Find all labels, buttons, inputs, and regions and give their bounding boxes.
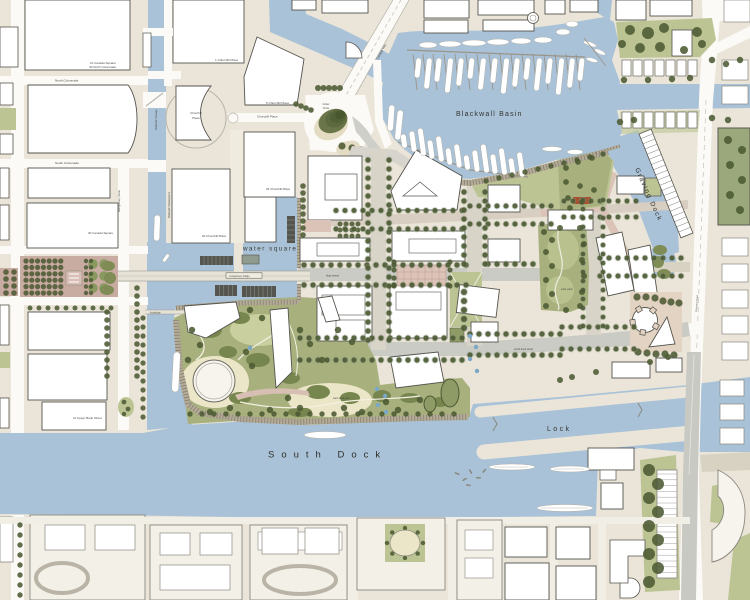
svg-text:south dock street: south dock street	[514, 348, 533, 351]
svg-text:Montgomery Street: Montgomery Street	[117, 190, 121, 212]
svg-text:west dock park: west dock park	[333, 397, 350, 400]
svg-text:South Dock: South Dock	[268, 450, 387, 461]
svg-text:30 North Colonnade: 30 North Colonnade	[89, 65, 116, 69]
svg-text:montgomery bridge: montgomery bridge	[229, 275, 250, 278]
svg-text:Bellmouth Passage: Bellmouth Passage	[155, 109, 158, 130]
svg-text:water square: water square	[242, 246, 297, 253]
svg-text:25 Churchill Place: 25 Churchill Place	[266, 187, 291, 191]
svg-text:5 Churchill Place: 5 Churchill Place	[266, 101, 289, 105]
svg-text:20 Churchill Place: 20 Churchill Place	[202, 234, 227, 238]
svg-text:10 Upper Bank Street: 10 Upper Bank Street	[73, 416, 102, 420]
svg-text:Cotter: Cotter	[323, 103, 330, 106]
svg-text:1 Churchill Place: 1 Churchill Place	[215, 58, 238, 62]
svg-text:east park: east park	[561, 287, 573, 291]
svg-text:Churchill: Churchill	[190, 111, 202, 115]
svg-text:footbridge: footbridge	[150, 312, 161, 315]
svg-text:Circle: Circle	[323, 107, 330, 110]
svg-text:Bellmouth Promenade S: Bellmouth Promenade S	[168, 192, 171, 218]
svg-text:North Colonnade: North Colonnade	[55, 79, 79, 83]
svg-text:Lock: Lock	[547, 426, 571, 433]
svg-text:high street: high street	[326, 274, 339, 278]
svg-text:Place: Place	[192, 116, 200, 120]
svg-text:South Colonnade: South Colonnade	[55, 161, 79, 165]
svg-text:30 Canada Square: 30 Canada Square	[88, 231, 114, 235]
svg-text:Blackwall Basin: Blackwall Basin	[456, 111, 523, 118]
svg-text:Churchill Place: Churchill Place	[257, 115, 278, 119]
